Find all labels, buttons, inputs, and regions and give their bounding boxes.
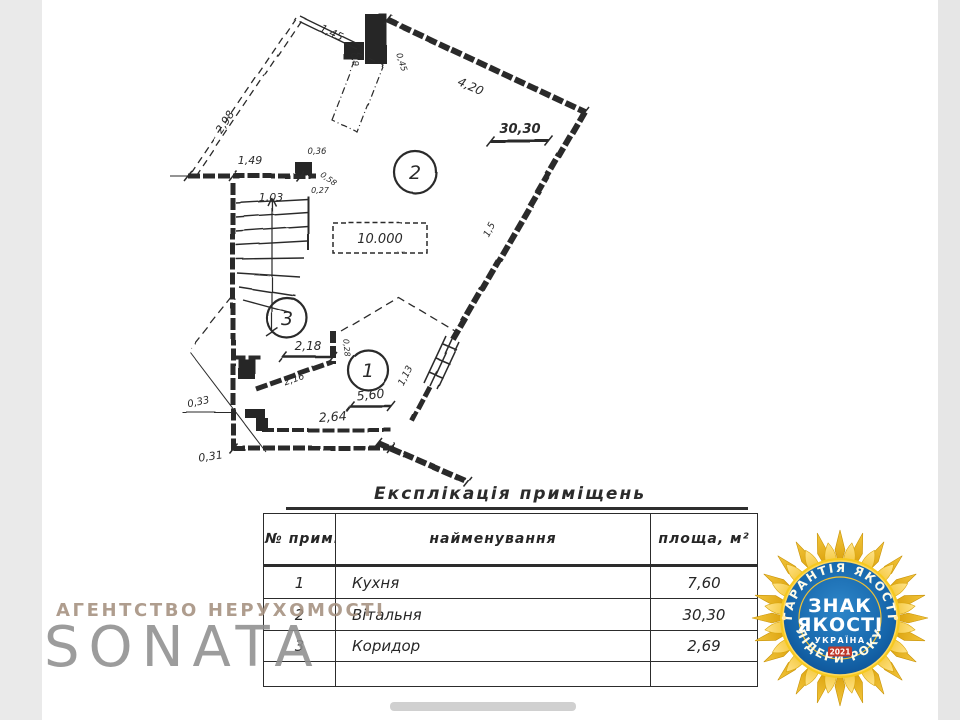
room-area: 7,60 — [651, 566, 758, 599]
dim-label: 4,20 — [456, 75, 486, 99]
table-title-underline — [286, 507, 748, 510]
dim-label: 0,36 — [308, 147, 328, 157]
dim-label: 0,9 — [348, 52, 360, 67]
explication-table: № прим. найменування площа, м² 1 Кухня 7… — [263, 513, 758, 687]
badge-country: УКРАЇНА — [814, 635, 865, 645]
dim-label: 1,03 — [259, 191, 284, 204]
room-number: 3 — [281, 308, 293, 330]
room-num: 1 — [264, 566, 336, 599]
plan-labels: 1,45 0,9 0,45 4,20 30,30 2,98 1,49 0,36 … — [186, 22, 540, 465]
table-row-empty — [264, 662, 758, 687]
window — [424, 336, 459, 389]
elevation-label: 10.000 — [357, 232, 403, 247]
dim-label: 2,98 — [213, 108, 237, 136]
badge-dot-right — [894, 616, 898, 620]
room-area: 30,30 — [651, 599, 758, 631]
dim-label: 1,13 — [396, 364, 415, 388]
badge-year: 2021 — [830, 648, 851, 657]
room-name: Коридор — [336, 631, 651, 662]
badge-center-line2: ЯКОСТІ — [797, 614, 883, 636]
dim-label: 1,45 — [318, 22, 346, 44]
dim-label: 2,64 — [318, 408, 347, 425]
header-room-area: площа, м² — [651, 514, 758, 566]
room-area — [651, 662, 758, 687]
table-row: 2 Вітальня 30,30 — [264, 599, 758, 631]
header-room-number: № прим. — [264, 514, 336, 566]
room-num — [264, 662, 336, 687]
table-title: Експлікація приміщень — [263, 484, 757, 504]
room-name: Вітальня — [336, 599, 651, 631]
room-num: 2 — [264, 599, 336, 631]
ledge-lines — [192, 16, 383, 175]
dim-label: 1,5 — [481, 221, 498, 239]
table-row: 1 Кухня 7,60 — [264, 566, 758, 599]
scan-bottom-mark — [390, 702, 576, 711]
table-row: 3 Коридор 2,69 — [264, 631, 758, 662]
room-number: 2 — [409, 162, 421, 184]
dim-label: 0,27 — [311, 186, 330, 195]
dim-label: 0,31 — [197, 448, 223, 464]
dim-label: 2,18 — [295, 339, 322, 353]
header-room-name: найменування — [336, 514, 651, 566]
area-label: 30,30 — [499, 122, 540, 137]
dim-label: 0,45 — [393, 52, 408, 73]
quality-badge: ГАРАНТІЯ ЯКОСТІ ЛІДЕРИ РОКУ ЗНАК ЯКОСТІ … — [748, 526, 932, 710]
badge-dot-left — [782, 616, 786, 620]
room-number: 1 — [362, 360, 374, 382]
dim-label: 0,28 — [341, 339, 352, 358]
staircase — [236, 196, 308, 336]
room-num: 3 — [264, 631, 336, 662]
room-area: 2,69 — [651, 631, 758, 662]
room-name — [336, 662, 651, 687]
room-name: Кухня — [336, 566, 651, 599]
floor-plan-drawing — [170, 14, 589, 487]
table-header-row: № прим. найменування площа, м² — [264, 514, 758, 566]
dim-label: 2,16 — [282, 371, 306, 388]
dim-label: 0,33 — [186, 395, 210, 410]
dim-label: 1,49 — [238, 154, 263, 167]
dim-label: 5,60 — [356, 386, 385, 404]
